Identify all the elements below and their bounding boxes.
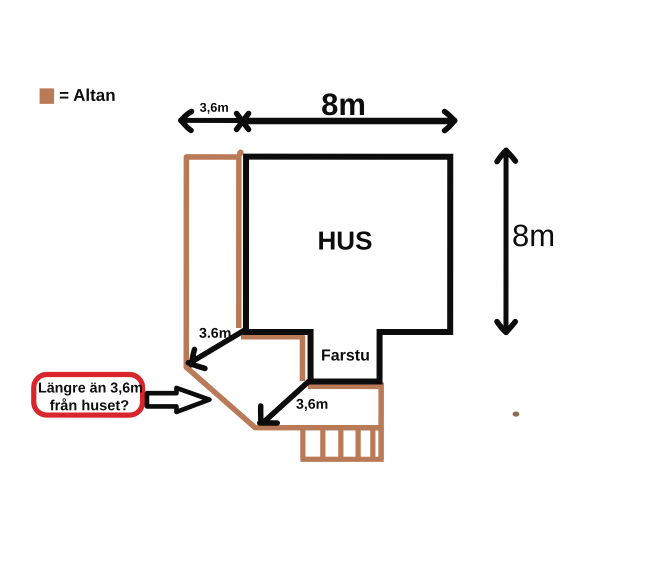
svg-text:Farstu: Farstu	[321, 347, 370, 364]
svg-text:3,6m: 3,6m	[296, 397, 328, 413]
svg-text:= Altan: = Altan	[59, 86, 116, 105]
svg-text:Längre än 3,6m: Längre än 3,6m	[38, 380, 143, 396]
svg-text:från huset?: från huset?	[50, 398, 130, 414]
svg-text:8m: 8m	[321, 87, 366, 122]
svg-text:3.6m: 3.6m	[199, 326, 231, 342]
svg-text:8m: 8m	[512, 218, 555, 253]
svg-text:3,6m: 3,6m	[200, 100, 229, 115]
svg-text:HUS: HUS	[318, 225, 373, 255]
